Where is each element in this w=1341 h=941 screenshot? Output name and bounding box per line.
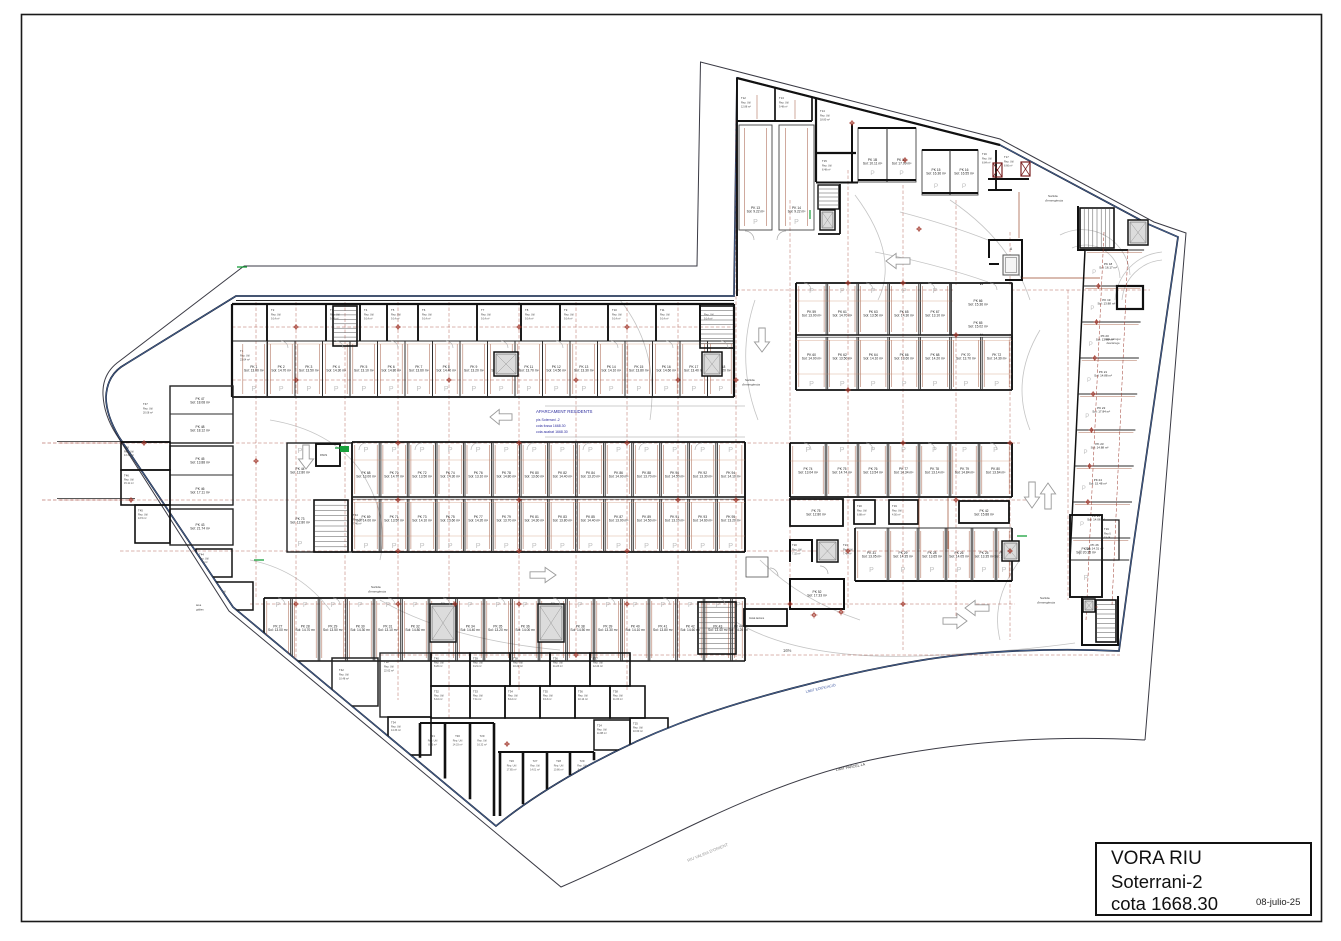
svg-text:13.38 m²: 13.38 m²: [124, 454, 134, 457]
svg-text:descàrrega: descàrrega: [1107, 341, 1121, 345]
svg-text:9.48 m²: 9.48 m²: [779, 106, 788, 109]
svg-text:Sol: 13.00 m²: Sol: 13.00 m²: [802, 314, 823, 318]
svg-text:P: P: [932, 445, 937, 454]
svg-text:Sol: 13.05 m²: Sol: 13.05 m²: [862, 554, 883, 558]
svg-text:P: P: [416, 386, 421, 393]
svg-text:àrea: àrea: [196, 603, 202, 607]
svg-text:Sol: 16.17 m²: Sol: 16.17 m²: [1099, 265, 1117, 269]
svg-text:9.21 m²: 9.21 m²: [473, 665, 482, 668]
svg-text:P: P: [1002, 567, 1007, 574]
svg-text:Rep. Util: Rep. Util: [857, 509, 867, 512]
svg-text:Rep. Util: Rep. Util: [578, 694, 588, 697]
svg-text:P: P: [554, 386, 559, 393]
svg-text:P: P: [389, 386, 394, 393]
svg-text:T19: T19: [1104, 527, 1109, 531]
svg-text:P: P: [609, 386, 614, 393]
svg-text:T39: T39: [473, 657, 478, 661]
svg-text:P: P: [532, 445, 537, 454]
svg-text:cota fossa 1668.30: cota fossa 1668.30: [536, 424, 566, 428]
svg-text:P: P: [504, 541, 509, 550]
svg-text:Sol: 14.00 m²: Sol: 14.00 m²: [515, 628, 536, 632]
svg-text:Sol: 14.10 m²: Sol: 14.10 m²: [412, 518, 433, 522]
svg-text:7.46 m²: 7.46 m²: [353, 523, 362, 526]
svg-text:T15: T15: [822, 159, 827, 163]
svg-text:Sol: 13.50 m²: Sol: 13.50 m²: [863, 314, 884, 318]
svg-text:Sol: 15.36 m²: Sol: 15.36 m²: [968, 302, 989, 306]
svg-text:P: P: [962, 445, 967, 454]
svg-text:14.01 m²: 14.01 m²: [530, 769, 540, 772]
svg-text:P: P: [933, 286, 938, 295]
svg-text:P: P: [444, 386, 449, 393]
svg-text:10.86 m²: 10.86 m²: [554, 769, 564, 772]
svg-text:P: P: [794, 219, 799, 226]
svg-text:Rep.U: Rep.U: [1104, 532, 1111, 535]
svg-text:P: P: [616, 541, 621, 550]
svg-text:T37: T37: [593, 657, 598, 661]
svg-text:P: P: [251, 386, 256, 393]
svg-text:Sol: 14.50 m²: Sol: 14.50 m²: [570, 628, 591, 632]
svg-text:Sol: 13.88 m²: Sol: 13.88 m²: [190, 460, 211, 464]
svg-text:10.14 m²: 10.14 m²: [578, 698, 588, 701]
svg-text:Rep. Util: Rep. Util: [741, 101, 751, 104]
svg-text:Sol: 14.80 m²: Sol: 14.80 m²: [381, 368, 402, 372]
svg-text:Sol: 14.50 m²: Sol: 14.50 m²: [546, 368, 567, 372]
svg-text:Sol: 9.22 m²: Sol: 9.22 m²: [788, 209, 807, 213]
svg-text:T20: T20: [857, 504, 862, 508]
svg-text:Rep. Util: Rep. Util: [473, 661, 483, 664]
svg-text:Sol: 21.74 m²: Sol: 21.74 m²: [190, 526, 211, 530]
svg-text:PANS: PANS: [320, 453, 327, 457]
svg-text:T32: T32: [384, 660, 389, 664]
svg-text:P: P: [691, 386, 696, 393]
svg-text:Rep. Util: Rep. Util: [364, 313, 374, 316]
svg-text:Sol: 14.00 m²: Sol: 14.00 m²: [802, 356, 823, 360]
svg-text:T47: T47: [143, 402, 148, 406]
svg-text:Sol: 13.80 m²: Sol: 13.80 m²: [629, 368, 650, 372]
svg-text:P: P: [840, 379, 845, 388]
svg-text:P: P: [306, 386, 311, 393]
svg-text:Sol: 9.22 m²: Sol: 9.22 m²: [747, 209, 766, 213]
svg-text:Sol: 13.50 m²: Sol: 13.50 m²: [412, 474, 433, 478]
svg-text:VORA RIU: VORA RIU: [1111, 848, 1202, 869]
svg-text:Sol: 17.33 m²: Sol: 17.33 m²: [807, 593, 828, 597]
svg-text:Sol: 18.12 m²: Sol: 18.12 m²: [190, 428, 211, 432]
svg-text:12.88 m²: 12.88 m²: [741, 106, 751, 109]
svg-text:T29: T29: [580, 759, 585, 763]
svg-text:Sol: 14.34 m²: Sol: 14.34 m²: [894, 470, 915, 474]
svg-text:P: P: [1089, 342, 1093, 348]
svg-text:T29: T29: [480, 734, 485, 738]
svg-text:Sol: 13.50 m²: Sol: 13.50 m²: [384, 518, 405, 522]
svg-text:Sol: 13.80 m²: Sol: 13.80 m²: [553, 518, 574, 522]
svg-text:Rep. Util: Rep. Util: [577, 764, 587, 767]
svg-text:P: P: [840, 286, 845, 295]
svg-text:Sol: 13.30 m²: Sol: 13.30 m²: [574, 368, 595, 372]
svg-text:Sol: 13.10 m²: Sol: 13.10 m²: [925, 314, 946, 318]
svg-text:Sol: 13.00 m²: Sol: 13.00 m²: [268, 628, 289, 632]
svg-text:P: P: [279, 386, 284, 393]
svg-text:Sol: 13.04 m²: Sol: 13.04 m²: [798, 470, 819, 474]
svg-text:T10: T10: [612, 308, 617, 312]
svg-text:Sol: 14.70 m²: Sol: 14.70 m²: [271, 368, 292, 372]
svg-text:Sol: 14.50 m²: Sol: 14.50 m²: [665, 474, 686, 478]
svg-text:P: P: [840, 445, 845, 454]
svg-text:T36: T36: [553, 657, 558, 661]
svg-text:Sol: 13.10 m²: Sol: 13.10 m²: [468, 474, 489, 478]
svg-text:Sol: 14.35 m²: Sol: 14.35 m²: [893, 554, 914, 558]
svg-text:P: P: [420, 445, 425, 454]
svg-text:Sol: 14.70 m²: Sol: 14.70 m²: [832, 314, 853, 318]
svg-text:P: P: [581, 386, 586, 393]
svg-text:T4: T4: [364, 308, 368, 312]
svg-text:P: P: [672, 541, 677, 550]
svg-text:Sol: 14.30 m²: Sol: 14.30 m²: [987, 356, 1008, 360]
svg-text:Sol: 14.30 m²: Sol: 14.30 m²: [350, 628, 371, 632]
svg-text:P: P: [532, 541, 537, 550]
svg-text:Sol: 13.35 m²: Sol: 13.35 m²: [974, 554, 995, 558]
svg-text:P: P: [728, 541, 733, 550]
svg-text:P: P: [385, 602, 390, 609]
svg-text:Sol: 14.10 m²: Sol: 14.10 m²: [601, 368, 622, 372]
svg-text:13.48: 13.48: [1104, 537, 1111, 540]
svg-text:Sol: 14.20 m²: Sol: 14.20 m²: [728, 628, 749, 632]
svg-text:Sortida: Sortida: [371, 585, 381, 589]
svg-text:T30: T30: [455, 734, 460, 738]
svg-text:P: P: [468, 602, 473, 609]
svg-text:P: P: [899, 170, 903, 177]
svg-text:P: P: [1090, 306, 1094, 312]
svg-text:22.62 m²: 22.62 m²: [384, 670, 394, 673]
svg-text:Sol: 17.11 m²: Sol: 17.11 m²: [190, 490, 210, 494]
svg-text:P: P: [715, 602, 720, 609]
svg-text:Sol: 14.80 m²: Sol: 14.80 m²: [496, 474, 517, 478]
svg-text:Sol: 13.14 m²: Sol: 13.14 m²: [925, 470, 946, 474]
svg-text:d'emergència: d'emergència: [368, 590, 386, 594]
svg-text:08-julio-25: 08-julio-25: [1256, 897, 1300, 908]
svg-text:Sol: 13.00 m²: Sol: 13.00 m²: [356, 474, 377, 478]
svg-text:16.32 m²: 16.32 m²: [477, 744, 487, 747]
svg-text:P: P: [636, 386, 641, 393]
svg-text:T21: T21: [843, 543, 848, 547]
svg-text:T35: T35: [543, 690, 548, 694]
svg-text:P: P: [930, 567, 935, 574]
svg-text:Sol: 15.88 m²: Sol: 15.88 m²: [974, 512, 995, 516]
svg-text:Rep. Util: Rep. Util: [339, 673, 349, 676]
svg-text:Sol: 14.30 m²: Sol: 14.30 m²: [326, 368, 347, 372]
svg-text:T5: T5: [391, 308, 395, 312]
svg-text:Rep. Util: Rep. Util: [240, 354, 250, 357]
svg-text:Rep. Util: Rep. Util: [660, 313, 670, 316]
svg-text:àrea càrrega i: àrea càrrega i: [1105, 337, 1121, 341]
svg-text:P: P: [303, 602, 308, 609]
svg-text:Sol: 15.02 m²: Sol: 15.02 m²: [968, 324, 989, 328]
svg-text:P: P: [448, 445, 453, 454]
svg-text:Rep. Util: Rep. Util: [428, 739, 438, 742]
svg-text:7.32 m²: 7.32 m²: [792, 553, 801, 556]
svg-text:P: P: [993, 445, 998, 454]
svg-text:P: P: [660, 602, 665, 609]
svg-text:Sol: 14.05 m²: Sol: 14.05 m²: [949, 554, 970, 558]
svg-text:Sol: 13.30 m²: Sol: 13.30 m²: [693, 474, 714, 478]
svg-text:Sortida: Sortida: [1040, 596, 1050, 600]
svg-text:P: P: [361, 386, 366, 393]
svg-text:Sol: 13.00 m²: Sol: 13.00 m²: [609, 518, 630, 522]
svg-text:Sol: 20.35 m²: Sol: 20.35 m²: [1076, 550, 1097, 554]
svg-text:Sol: 13.80 m²: Sol: 13.80 m²: [653, 628, 674, 632]
svg-text:Sol: 16.36 m²: Sol: 16.36 m²: [926, 171, 947, 175]
svg-text:6.10 m²: 6.10 m²: [434, 698, 443, 701]
svg-text:T34: T34: [508, 690, 513, 694]
svg-text:P: P: [523, 602, 528, 609]
svg-text:7.48 m²: 7.48 m²: [843, 553, 852, 556]
svg-text:Rep. Util: Rep. Util: [543, 694, 553, 697]
svg-text:Sol: 13.00 m²: Sol: 13.00 m²: [244, 368, 265, 372]
svg-text:Sol: 14.40 m²: Sol: 14.40 m²: [460, 628, 481, 632]
svg-text:8.84 m²: 8.84 m²: [982, 162, 991, 165]
svg-text:9.14 m²: 9.14 m²: [271, 318, 280, 321]
svg-text:Sortida: Sortida: [745, 378, 755, 382]
svg-text:Sol: 17.84 m²: Sol: 17.84 m²: [1092, 409, 1110, 413]
svg-text:P: P: [957, 567, 962, 574]
svg-text:P: P: [616, 445, 621, 454]
svg-text:Sol: 14.88 m²: Sol: 14.88 m²: [1091, 445, 1109, 449]
svg-text:Rep. Util: Rep. Util: [143, 407, 153, 410]
svg-text:9.14 m²: 9.14 m²: [422, 318, 431, 321]
svg-text:7.11 m²: 7.11 m²: [473, 698, 481, 701]
svg-text:Rep. Util: Rep. Util: [508, 694, 518, 697]
svg-text:Sol: 18.08 m²: Sol: 18.08 m²: [190, 400, 211, 404]
svg-text:Sol: 14.10 m²: Sol: 14.10 m²: [721, 474, 742, 478]
svg-text:Rep. Util: Rep. Util: [564, 313, 574, 316]
svg-text:Rep. Util: Rep. Util: [434, 694, 444, 697]
svg-text:8.12 m²: 8.12 m²: [508, 698, 517, 701]
svg-text:P: P: [1082, 486, 1086, 492]
svg-text:Rep. Util: Rep. Util: [477, 739, 487, 742]
svg-text:10.22 m²: 10.22 m²: [513, 665, 523, 668]
svg-text:Sol: 17.99 m²: Sol: 17.99 m²: [892, 161, 913, 165]
svg-text:Sol: 12.80 m²: Sol: 12.80 m²: [806, 512, 827, 516]
svg-text:Rep. Util: Rep. Util: [434, 661, 444, 664]
svg-text:T20: T20: [792, 543, 797, 547]
svg-text:P: P: [1092, 270, 1096, 276]
svg-text:Sol: 13.50 m²: Sol: 13.50 m²: [832, 356, 853, 360]
svg-text:P: P: [809, 286, 814, 295]
svg-text:T32: T32: [434, 690, 439, 694]
svg-text:9.14 m²: 9.14 m²: [525, 318, 534, 321]
svg-text:11.15 m²: 11.15 m²: [613, 698, 623, 701]
svg-text:Sol: 13.70 m²: Sol: 13.70 m²: [519, 368, 540, 372]
svg-text:P: P: [499, 386, 504, 393]
svg-text:Sol: 14.60 m²: Sol: 14.60 m²: [693, 518, 714, 522]
svg-text:P: P: [869, 567, 874, 574]
svg-text:Sol: 13.20 m²: Sol: 13.20 m²: [464, 368, 485, 372]
svg-text:Rep. Util: Rep. Util: [473, 694, 483, 697]
svg-text:Rep. Util: Rep. Util: [612, 313, 622, 316]
svg-text:Sol: 13.50 m²: Sol: 13.50 m²: [323, 628, 344, 632]
svg-text:9.14 m²: 9.14 m²: [391, 318, 400, 321]
svg-text:Sol: 14.00 m²: Sol: 14.00 m²: [609, 474, 630, 478]
svg-text:P: P: [664, 386, 669, 393]
svg-text:Sol: 13.10 m²: Sol: 13.10 m²: [665, 518, 686, 522]
svg-text:11.88 m²: 11.88 m²: [597, 732, 607, 735]
svg-text:Sol: 13.70 m²: Sol: 13.70 m²: [496, 518, 517, 522]
svg-text:Rep. Util: Rep. Util: [530, 764, 540, 767]
svg-text:P: P: [334, 386, 339, 393]
svg-text:Rep. Util: Rep. Util: [481, 313, 491, 316]
svg-text:P: P: [934, 183, 938, 190]
svg-text:APARCAMENT RESIDENTS: APARCAMENT RESIDENTS: [536, 409, 593, 414]
svg-text:Sol: 13.70 m²: Sol: 13.70 m²: [637, 474, 658, 478]
svg-text:P: P: [902, 286, 907, 295]
svg-text:Sol: 13.60 m²: Sol: 13.60 m²: [409, 368, 430, 372]
svg-text:Sol: 13.20 m²: Sol: 13.20 m²: [488, 628, 509, 632]
svg-text:P: P: [448, 541, 453, 550]
svg-text:Sol: 13.20 m²: Sol: 13.20 m²: [721, 518, 742, 522]
svg-text:Sol: 13.60 m²: Sol: 13.60 m²: [524, 474, 545, 478]
svg-text:Sol: 14.88 m²: Sol: 14.88 m²: [1094, 373, 1112, 377]
svg-text:P: P: [1085, 414, 1089, 420]
svg-text:T12: T12: [741, 96, 746, 100]
svg-text:Rep. Util: Rep. Util: [822, 164, 832, 167]
svg-text:d'emergència: d'emergència: [1045, 199, 1063, 203]
svg-text:T28: T28: [556, 759, 561, 763]
svg-text:13.5 m²: 13.5 m²: [138, 517, 147, 520]
svg-text:d'emergència: d'emergència: [742, 383, 760, 387]
svg-text:Sortida: Sortida: [1048, 194, 1058, 198]
svg-text:Sol: 14.40 m²: Sol: 14.40 m²: [581, 518, 602, 522]
svg-text:9.14 m²: 9.14 m²: [364, 318, 373, 321]
svg-text:P: P: [901, 567, 906, 574]
svg-text:Sol: 12.80 m²: Sol: 12.80 m²: [290, 520, 311, 524]
svg-text:P: P: [994, 379, 999, 388]
svg-text:T9: T9: [564, 308, 568, 312]
svg-text:Sol: 14.74 m²: Sol: 14.74 m²: [832, 470, 853, 474]
svg-text:Instal·lacions: Instal·lacions: [749, 616, 765, 620]
svg-text:Sol: 13.64 m²: Sol: 13.64 m²: [986, 470, 1007, 474]
svg-text:Sol: 14.80 m²: Sol: 14.80 m²: [405, 628, 426, 632]
svg-text:8.03 m²: 8.03 m²: [428, 744, 437, 747]
svg-text:16%: 16%: [783, 648, 792, 653]
svg-text:T42: T42: [339, 668, 344, 672]
svg-text:Sol: 13.50 m²: Sol: 13.50 m²: [299, 368, 320, 372]
svg-text:T44: T44: [353, 513, 358, 517]
svg-text:P: P: [1083, 450, 1087, 456]
svg-text:Sol: 16.55 m²: Sol: 16.55 m²: [954, 171, 975, 175]
svg-text:Rep. Util: Rep. Util: [422, 313, 432, 316]
svg-text:Rep. Util: Rep. Util: [553, 661, 563, 664]
svg-text:T25: T25: [633, 722, 638, 726]
svg-text:T11: T11: [660, 308, 665, 312]
svg-text:P: P: [688, 602, 693, 609]
svg-text:Rep. Util: Rep. Util: [124, 450, 134, 453]
svg-text:8.66 m²: 8.66 m²: [1004, 165, 1013, 168]
svg-text:P: P: [982, 567, 987, 574]
svg-text:P: P: [298, 541, 303, 548]
svg-text:Sol: 14.10 m²: Sol: 14.10 m²: [863, 356, 884, 360]
svg-text:Sol: 14.30 m²: Sol: 14.30 m²: [440, 474, 461, 478]
svg-text:T19: T19: [892, 504, 897, 508]
svg-text:Sol: 14.70 m²: Sol: 14.70 m²: [384, 474, 405, 478]
svg-text:P: P: [902, 379, 907, 388]
svg-text:T34: T34: [391, 721, 396, 725]
svg-text:d'emergència: d'emergència: [1037, 601, 1055, 605]
svg-text:Rep. Util: Rep. Util: [779, 101, 789, 104]
svg-text:P: P: [605, 602, 610, 609]
svg-text:P: P: [364, 445, 369, 454]
svg-text:Sol: 15.48 m²: Sol: 15.48 m²: [1089, 481, 1107, 485]
svg-text:Rep. Util: Rep. Util: [792, 548, 802, 551]
svg-text:cota acabat 1668.30: cota acabat 1668.30: [536, 430, 568, 434]
svg-text:Rep. Util: Rep. Util: [507, 764, 517, 767]
svg-text:Rep. Util: Rep. Util: [271, 313, 281, 316]
svg-text:P: P: [364, 541, 369, 550]
svg-text:Sol: 12.80 m²: Sol: 12.80 m²: [290, 470, 311, 474]
svg-text:P: P: [275, 602, 280, 609]
svg-text:Sol: 13.60 m²: Sol: 13.60 m²: [440, 518, 461, 522]
svg-text:P: P: [330, 602, 335, 609]
svg-text:Sol: 13.10 m²: Sol: 13.10 m²: [354, 368, 375, 372]
svg-text:P: P: [700, 541, 705, 550]
svg-text:Rep. Util: Rep. Util: [704, 313, 714, 316]
svg-text:T6: T6: [422, 308, 426, 312]
svg-text:P: P: [809, 379, 814, 388]
svg-text:T38: T38: [513, 657, 518, 661]
svg-text:Rep. Util: Rep. Util: [384, 665, 394, 668]
svg-text:20.08 m²: 20.08 m²: [143, 412, 153, 415]
svg-text:T24: T24: [597, 724, 602, 728]
svg-text:T33: T33: [473, 690, 478, 694]
svg-text:P: P: [504, 445, 509, 454]
svg-text:P: P: [413, 602, 418, 609]
svg-text:11.23 m²: 11.23 m²: [553, 665, 563, 668]
svg-text:6.88 m²: 6.88 m²: [857, 514, 866, 517]
svg-text:cota 1668.30: cota 1668.30: [1111, 893, 1218, 914]
svg-text:Sol: 14.40 m²: Sol: 14.40 m²: [436, 368, 457, 372]
svg-text:Sol: 14.84 m²: Sol: 14.84 m²: [955, 470, 976, 474]
svg-text:P: P: [633, 602, 638, 609]
svg-text:P: P: [964, 379, 969, 388]
svg-text:T26: T26: [509, 759, 514, 763]
svg-text:P: P: [526, 386, 531, 393]
svg-text:10.48 m²: 10.48 m²: [339, 678, 349, 681]
svg-text:Sol: 10.11 m²: Sol: 10.11 m²: [863, 161, 883, 165]
svg-text:12.24 m²: 12.24 m²: [593, 665, 603, 668]
svg-text:Rep. Util: Rep. Util: [554, 764, 564, 767]
svg-text:T14: T14: [820, 109, 825, 113]
svg-text:P: P: [1080, 522, 1084, 528]
svg-text:P: P: [933, 379, 938, 388]
svg-text:P: P: [588, 541, 593, 550]
svg-text:Sol: 13.20 m²: Sol: 13.20 m²: [581, 474, 602, 478]
svg-text:P: P: [358, 602, 363, 609]
svg-text:P: P: [871, 379, 876, 388]
svg-text:Rep. Util: Rep. Util: [593, 661, 603, 664]
svg-text:T44: T44: [199, 553, 204, 557]
svg-text:18.80 m²: 18.80 m²: [820, 119, 830, 122]
svg-text:T40: T40: [434, 657, 439, 661]
svg-text:P: P: [560, 445, 565, 454]
svg-text:14.33 m²: 14.33 m²: [453, 744, 463, 747]
svg-text:Rep. Util: Rep. Util: [820, 114, 830, 117]
svg-text:14.33 m²: 14.33 m²: [391, 729, 401, 732]
svg-text:Rep. Util: Rep. Util: [513, 661, 523, 664]
svg-text:T17: T17: [1004, 155, 1009, 159]
svg-text:P: P: [871, 286, 876, 295]
svg-text:P: P: [672, 445, 677, 454]
svg-text:P: P: [1084, 575, 1089, 582]
svg-text:Rep. Util: Rep. Util: [613, 694, 623, 697]
svg-text:Sol: 13.60 m²: Sol: 13.60 m²: [894, 356, 915, 360]
